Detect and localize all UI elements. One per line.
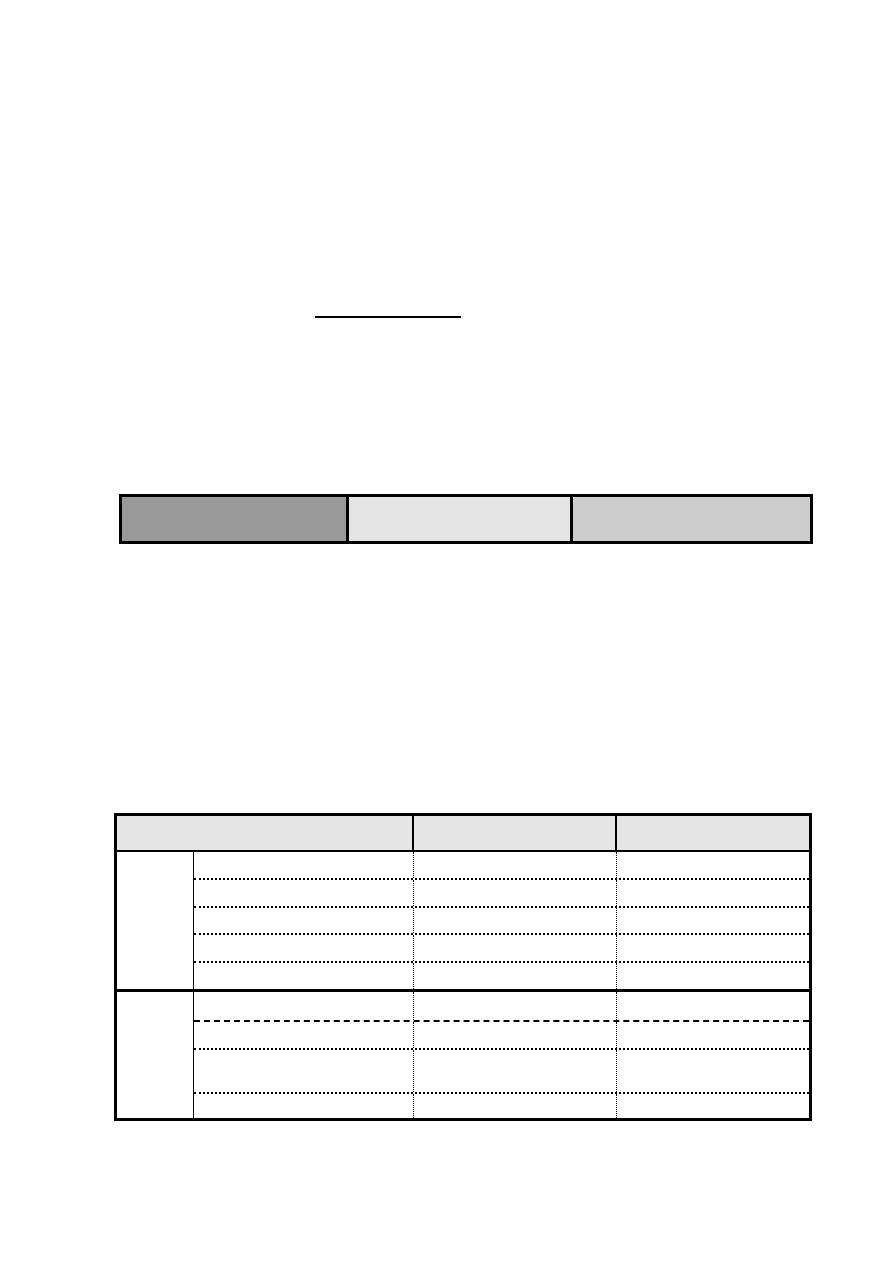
table-cell [413,935,616,961]
table-header-cell-3 [617,816,809,850]
table-body [117,852,809,1118]
table-cell [413,963,616,989]
table-cell [413,852,616,878]
table-cell [413,1094,616,1118]
table-cell [413,880,616,906]
table-row [194,906,809,934]
table-row [194,878,809,906]
table-section-2 [117,992,809,1118]
table-row [194,852,809,878]
table-cell [194,1094,413,1118]
table-cell [413,992,616,1020]
table-cell [616,908,809,934]
table-cell [194,935,413,961]
table-cell [616,1022,809,1048]
table-row [194,992,809,1020]
table-cell [616,935,809,961]
table-cell [616,992,809,1020]
section-1-row-header-cell [117,852,194,989]
table-cell [413,908,616,934]
table-cell [413,1022,616,1048]
three-cell-color-bar [119,494,813,544]
table-cell [194,908,413,934]
table-cell [616,880,809,906]
bar-cell-3 [570,497,810,541]
section-2-row-header-cell [117,992,194,1118]
table-cell [194,1022,413,1048]
table-header-row [117,816,809,852]
table-cell [194,992,413,1020]
table-cell [413,1050,616,1092]
table-row [194,961,809,989]
table-header-cell-1 [117,816,414,850]
table-row [194,1092,809,1118]
bar-cell-1 [122,497,346,541]
table-cell [194,880,413,906]
bar-cell-2 [346,497,570,541]
table-section-1 [117,852,809,992]
table-row [194,1020,809,1048]
table-cell [616,1050,809,1092]
section-1-rows [194,852,809,989]
table-cell [194,963,413,989]
table-cell [194,1050,413,1092]
table-cell [616,963,809,989]
blank-underline-rule [315,316,461,318]
document-page [0,0,893,1262]
table-header-cell-2 [414,816,617,850]
empty-data-table [114,813,812,1121]
section-2-rows [194,992,809,1118]
table-row [194,1048,809,1092]
table-row [194,933,809,961]
table-cell [616,852,809,878]
table-cell [194,852,413,878]
table-cell [616,1094,809,1118]
